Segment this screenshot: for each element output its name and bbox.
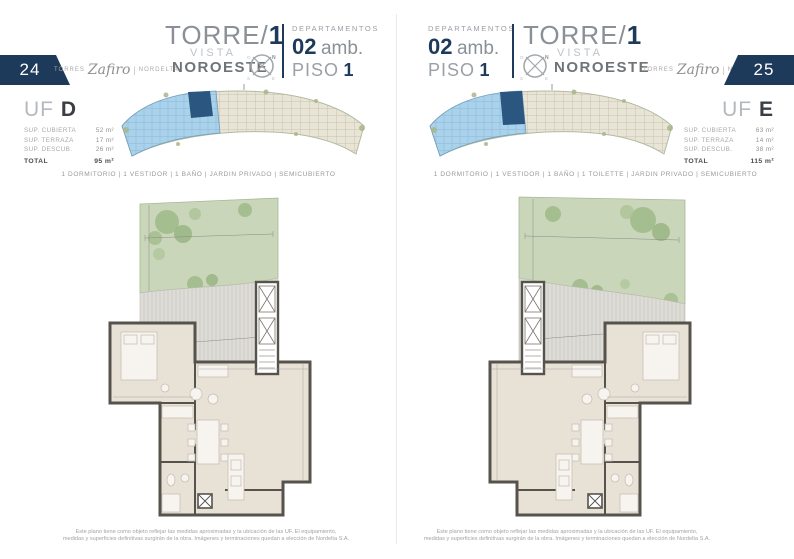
disclaimer-left: Este plano tiene como objeto reflejar la… — [36, 529, 376, 543]
vista-label-left: VISTA — [190, 47, 236, 59]
entry-shaft — [198, 494, 212, 508]
sofa — [572, 365, 602, 377]
uf-label: UF — [722, 98, 752, 121]
armchair — [190, 388, 202, 400]
brand-separator: | — [133, 65, 135, 75]
departamentos-label: DEPARTAMENTOS — [428, 24, 515, 33]
uf-letter: D — [61, 98, 77, 121]
header-divider-right — [512, 24, 514, 78]
page-number-label: 24 — [20, 60, 41, 80]
brand-zafiro: Zafiro — [88, 63, 131, 77]
brand-torres: TORRES — [643, 67, 674, 73]
stair-shaft — [256, 282, 278, 374]
orientation-right: NOROESTE — [554, 59, 650, 76]
departamentos-block-right: DEPARTAMENTOS 02 amb. PISO 1 — [428, 24, 515, 81]
features-line-right: 1 DORMITORIO | 1 VESTIDOR | 1 BAÑO | 1 T… — [397, 171, 794, 178]
compass-icon: N O S E — [518, 49, 552, 83]
closet — [162, 406, 193, 418]
side-table — [161, 384, 169, 392]
dining-table — [581, 420, 603, 464]
compass-icon: N O S E — [245, 49, 279, 83]
brand-logo-left: TORRES Zafiro | NORDELTA — [54, 61, 179, 79]
svg-text:E: E — [272, 76, 275, 81]
piso-number: 1 — [479, 60, 489, 80]
coffee-table — [582, 394, 592, 404]
svg-text:S: S — [247, 76, 250, 81]
unit-info-uf-d: UF D SUP. CUBIERTA52 m² SUP. TERRAZA17 m… — [24, 98, 114, 166]
page-number-right: 25 — [724, 55, 794, 85]
vista-label-right: VISTA — [557, 47, 603, 59]
uf-letter: E — [759, 98, 774, 121]
header-divider-left — [282, 24, 284, 78]
torre-number: 1 — [627, 20, 642, 50]
amb-number: 02 — [292, 34, 316, 59]
unit-e-highlight — [500, 91, 525, 125]
disclaimer-right: Este plano tiene como objeto reflejar la… — [397, 529, 737, 543]
svg-text:O: O — [247, 55, 251, 60]
departamentos-block-left: DEPARTAMENTOS 02 amb. PISO 1 — [292, 24, 379, 81]
brand-separator: | — [722, 65, 724, 75]
kitchen-counter — [228, 454, 244, 500]
svg-text:S: S — [520, 76, 523, 81]
brochure-spread: { "brand": {"torres": "TORRES", "zafiro"… — [0, 0, 794, 559]
surface-table: SUP. CUBIERTA63 m² SUP. TERRAZA14 m² SUP… — [684, 126, 774, 166]
amb-label: amb. — [321, 38, 363, 59]
shower — [620, 494, 638, 512]
side-table — [631, 384, 639, 392]
piso-number: 1 — [343, 60, 353, 80]
armchair — [598, 388, 610, 400]
shower — [162, 494, 180, 512]
unit-d-highlight — [188, 91, 213, 118]
floor-plan-uf-e — [475, 192, 705, 527]
svg-text:O: O — [520, 55, 524, 60]
sink — [611, 474, 619, 482]
sink — [181, 474, 189, 482]
entry-shaft — [588, 494, 602, 508]
page-gutter-divider — [396, 14, 397, 544]
site-plan-right — [424, 84, 680, 166]
brand-zafiro: Zafiro — [677, 63, 720, 77]
svg-text:N: N — [545, 55, 549, 61]
departamentos-label: DEPARTAMENTOS — [292, 24, 379, 33]
floor-plan-uf-d — [95, 192, 325, 527]
stair-shaft — [522, 282, 544, 374]
svg-text:N: N — [272, 55, 276, 61]
toilet — [625, 474, 633, 486]
piso-label: PISO — [292, 60, 339, 80]
piso-label: PISO — [428, 60, 475, 80]
features-line-left: 1 DORMITORIO | 1 VESTIDOR | 1 BAÑO | JAR… — [0, 171, 397, 178]
page-number-label: 25 — [754, 60, 775, 80]
torre-label: TORRE/ — [523, 20, 627, 50]
site-plan-left — [116, 84, 372, 166]
torre-label: TORRE/ — [165, 20, 269, 50]
kitchen-counter — [556, 454, 572, 500]
brand-torres: TORRES — [54, 67, 85, 73]
svg-text:E: E — [545, 76, 548, 81]
dining-table — [197, 420, 219, 464]
uf-label: UF — [24, 98, 54, 121]
closet — [607, 406, 638, 418]
unit-info-uf-e: UF E SUP. CUBIERTA63 m² SUP. TERRAZA14 m… — [684, 98, 774, 166]
surface-table: SUP. CUBIERTA52 m² SUP. TERRAZA17 m² SUP… — [24, 126, 114, 166]
sofa — [198, 365, 228, 377]
amb-number: 02 — [428, 34, 452, 59]
coffee-table — [208, 394, 218, 404]
toilet — [167, 474, 175, 486]
amb-label: amb. — [457, 38, 499, 59]
